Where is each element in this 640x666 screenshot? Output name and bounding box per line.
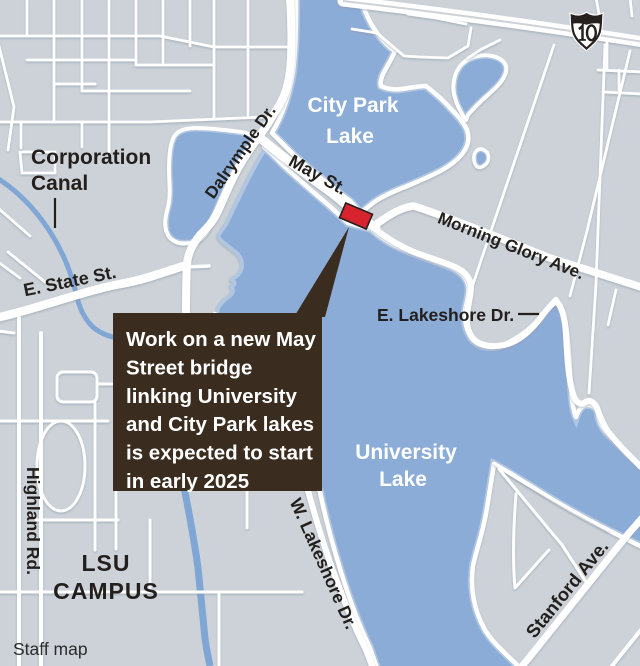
svg-text:Lake: Lake [326, 125, 374, 148]
svg-text:Highland Rd.: Highland Rd. [23, 467, 43, 575]
svg-text:Staff map: Staff map [13, 639, 88, 659]
svg-text:Work on a new May: Work on a new May [126, 328, 316, 351]
svg-text:is expected to start: is expected to start [126, 442, 313, 465]
svg-text:and City Park lakes: and City Park lakes [126, 413, 314, 436]
svg-text:Lake: Lake [379, 468, 427, 491]
svg-text:Canal: Canal [31, 172, 88, 195]
svg-text:E. Lakeshore Dr.: E. Lakeshore Dr. [377, 305, 514, 325]
svg-text:in early 2025: in early 2025 [126, 470, 249, 493]
svg-text:LSU: LSU [82, 550, 131, 576]
svg-text:Street bridge: Street bridge [126, 356, 252, 379]
svg-text:CAMPUS: CAMPUS [53, 578, 159, 604]
svg-text:University: University [355, 441, 457, 464]
svg-text:Corporation: Corporation [31, 146, 151, 169]
svg-text:linking University: linking University [126, 385, 297, 408]
svg-text:City Park: City Park [307, 94, 398, 117]
